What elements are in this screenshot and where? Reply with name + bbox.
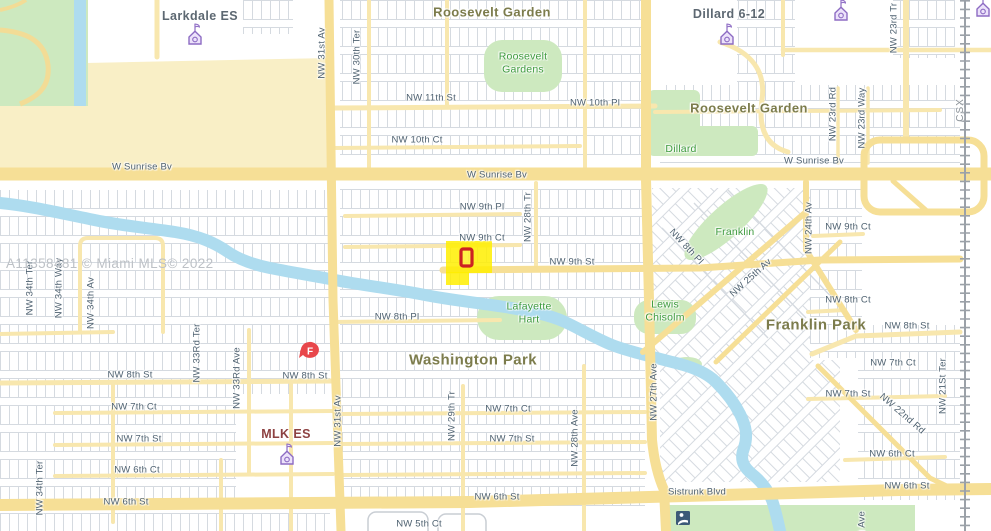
school-icon [835, 0, 847, 20]
school-icon [189, 24, 201, 44]
library-icon [676, 511, 690, 525]
map-layers: F [0, 0, 991, 531]
subject-property-marker[interactable] [461, 249, 472, 266]
school-icon [977, 0, 989, 16]
school-icon [721, 24, 733, 44]
map-canvas[interactable]: F NW 11th St NW 10th Pl NW 10th Ct W Sun… [0, 0, 991, 531]
fire-station-letter: F [307, 347, 313, 358]
